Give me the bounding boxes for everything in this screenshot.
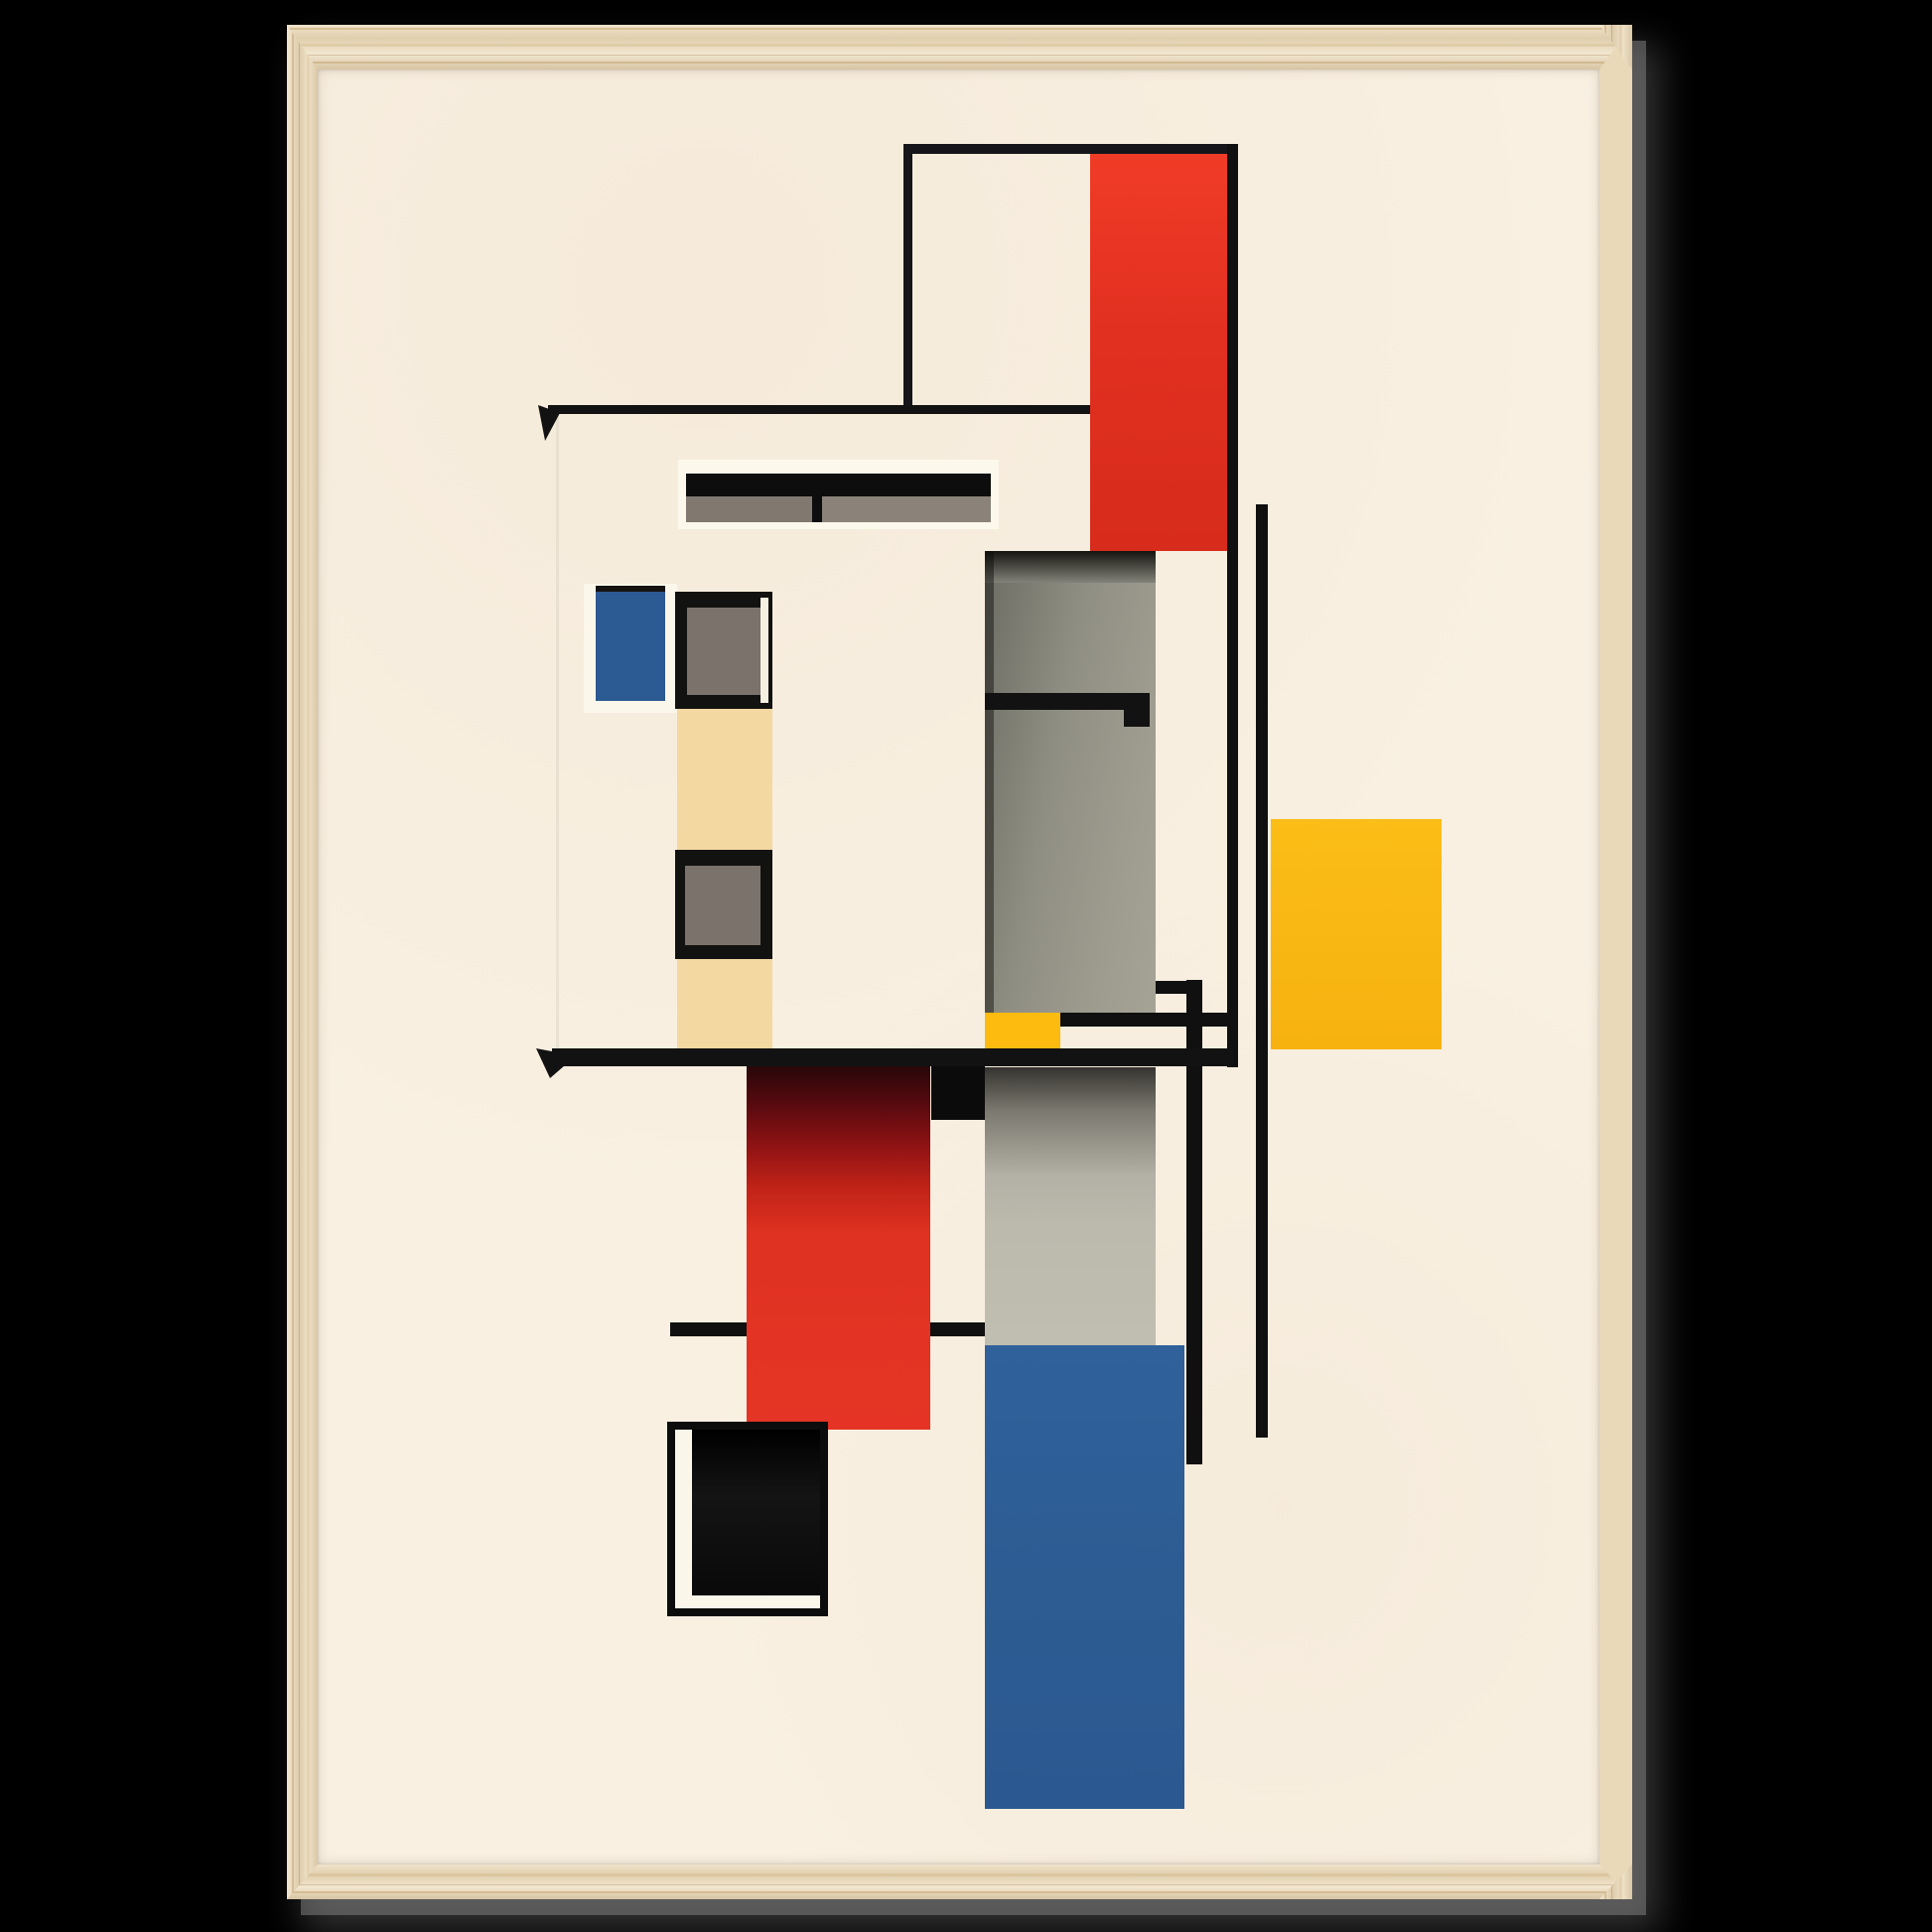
- picture-frame: [287, 25, 1632, 1899]
- book-fill: [692, 1430, 820, 1595]
- strip-window-pane-right: [822, 496, 991, 522]
- strip-window-pane-left: [686, 496, 812, 522]
- tower-upper-body: [985, 583, 1156, 1013]
- column-pane-1: [687, 608, 760, 695]
- black-square: [931, 1064, 985, 1120]
- column-tan-2: [677, 959, 772, 1048]
- frame-wood-left: [287, 25, 318, 1899]
- yellow-square: [1271, 819, 1442, 1049]
- column-white-edge: [760, 598, 768, 703]
- product-photo: [0, 0, 1932, 1932]
- tower-cross-bar-hook: [1124, 710, 1150, 727]
- poster-artwork: [318, 69, 1599, 1864]
- long-vertical-line-b: [1256, 504, 1268, 1438]
- yellow-ledge: [985, 1013, 1060, 1048]
- tower-top-band: [985, 551, 1156, 585]
- tower-lower-body: [985, 1067, 1156, 1345]
- facade-left-edge: [556, 414, 559, 1048]
- column-pane-2: [685, 866, 760, 945]
- tower-left-shade: [985, 551, 994, 1013]
- roof-bar: [548, 405, 1090, 414]
- frame-wood-right: [1599, 25, 1632, 1899]
- red-block-bottom: [747, 1054, 930, 1430]
- junction-line-long: [1060, 1013, 1231, 1027]
- strip-window-mullion: [812, 490, 822, 522]
- outline-box-top-line: [903, 144, 1238, 154]
- red-block-top: [1090, 151, 1228, 551]
- column-tan-1: [677, 709, 772, 850]
- floor-bar: [552, 1048, 1233, 1066]
- frame-wood-top: [287, 25, 1632, 69]
- blue-window: [596, 592, 665, 701]
- frame-wood-bottom: [287, 1864, 1632, 1899]
- blue-block: [985, 1345, 1184, 1809]
- tower-cross-bar: [985, 693, 1150, 710]
- long-vertical-line-a: [1227, 144, 1238, 1067]
- strip-window-black-band: [686, 474, 991, 496]
- outline-box-left-line: [903, 144, 912, 405]
